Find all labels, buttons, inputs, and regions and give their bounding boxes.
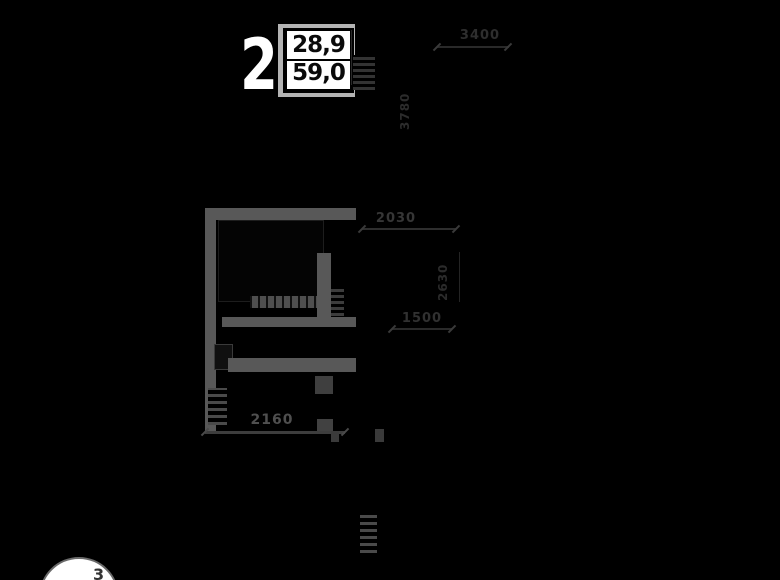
wall-top	[205, 208, 356, 220]
wall-hatch-icon	[353, 55, 375, 90]
dimension-bottom-line	[205, 431, 345, 434]
dimension-lower-label: 1500	[396, 311, 448, 326]
extension-line	[351, 30, 352, 85]
living-area-value: 28,9	[287, 31, 350, 59]
dimension-top-label: 3400	[450, 28, 510, 43]
dimension-mid-line	[362, 228, 456, 230]
dimension-lower-line	[392, 328, 452, 330]
dimension-room-vertical-label: 2630	[436, 249, 450, 301]
floor-badge: 3	[39, 557, 119, 580]
floor-plan-canvas: 2 28,9 59,0 3400 3780 2030 2630 1500 216…	[0, 0, 780, 580]
window-icon-bottom	[360, 512, 377, 553]
wall-end-mark	[375, 429, 384, 442]
wall-end-mark	[331, 431, 339, 442]
unit-rooms-number: 2	[240, 30, 278, 100]
dimension-tick	[448, 325, 456, 333]
dimension-entry-vertical-label: 3780	[398, 86, 412, 130]
dimension-tick	[341, 428, 349, 436]
wall-bottom-upper	[228, 358, 356, 372]
dimension-top-line	[437, 46, 509, 48]
wall-right-mid	[317, 253, 331, 323]
total-area-value: 59,0	[287, 59, 350, 87]
dimension-mid-label: 2030	[370, 211, 422, 226]
dimension-room-vertical-line	[459, 252, 460, 302]
dimension-tick	[452, 225, 460, 233]
wall-mid	[222, 317, 356, 327]
balcony-outline	[218, 220, 324, 302]
area-badge-divider	[287, 59, 350, 61]
window-icon-left	[208, 388, 227, 425]
wall-stub	[315, 376, 333, 394]
dimension-tick	[504, 43, 512, 51]
floor-number: 3	[93, 565, 104, 580]
dimension-bottom-label: 2160	[244, 412, 300, 428]
